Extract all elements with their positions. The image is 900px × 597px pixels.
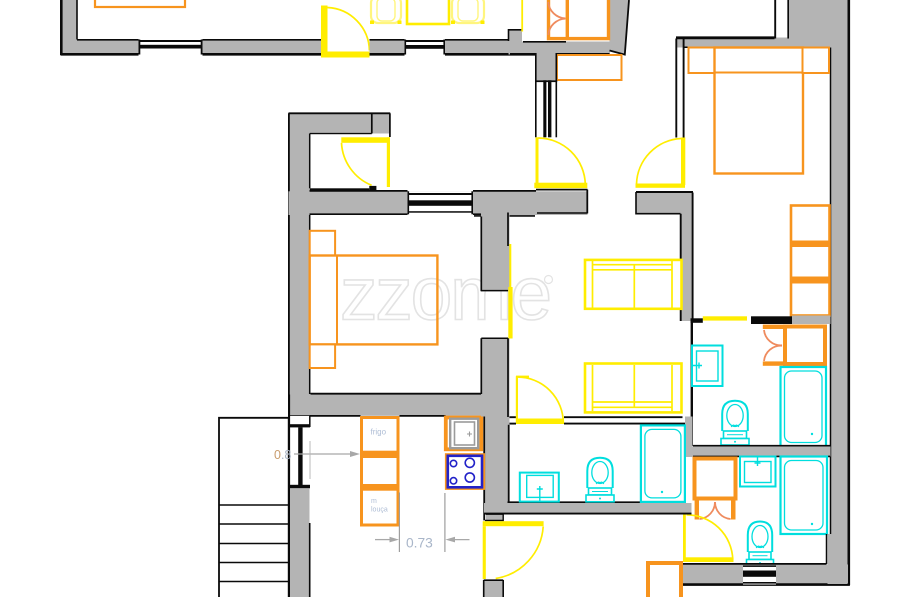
svg-text:frigo: frigo bbox=[371, 428, 387, 437]
svg-text:m: m bbox=[371, 498, 377, 505]
svg-text:zzome: zzome bbox=[340, 252, 550, 336]
svg-text:0.8: 0.8 bbox=[274, 448, 291, 462]
svg-text:louça: louça bbox=[371, 507, 388, 514]
svg-text:0.73: 0.73 bbox=[406, 536, 433, 551]
